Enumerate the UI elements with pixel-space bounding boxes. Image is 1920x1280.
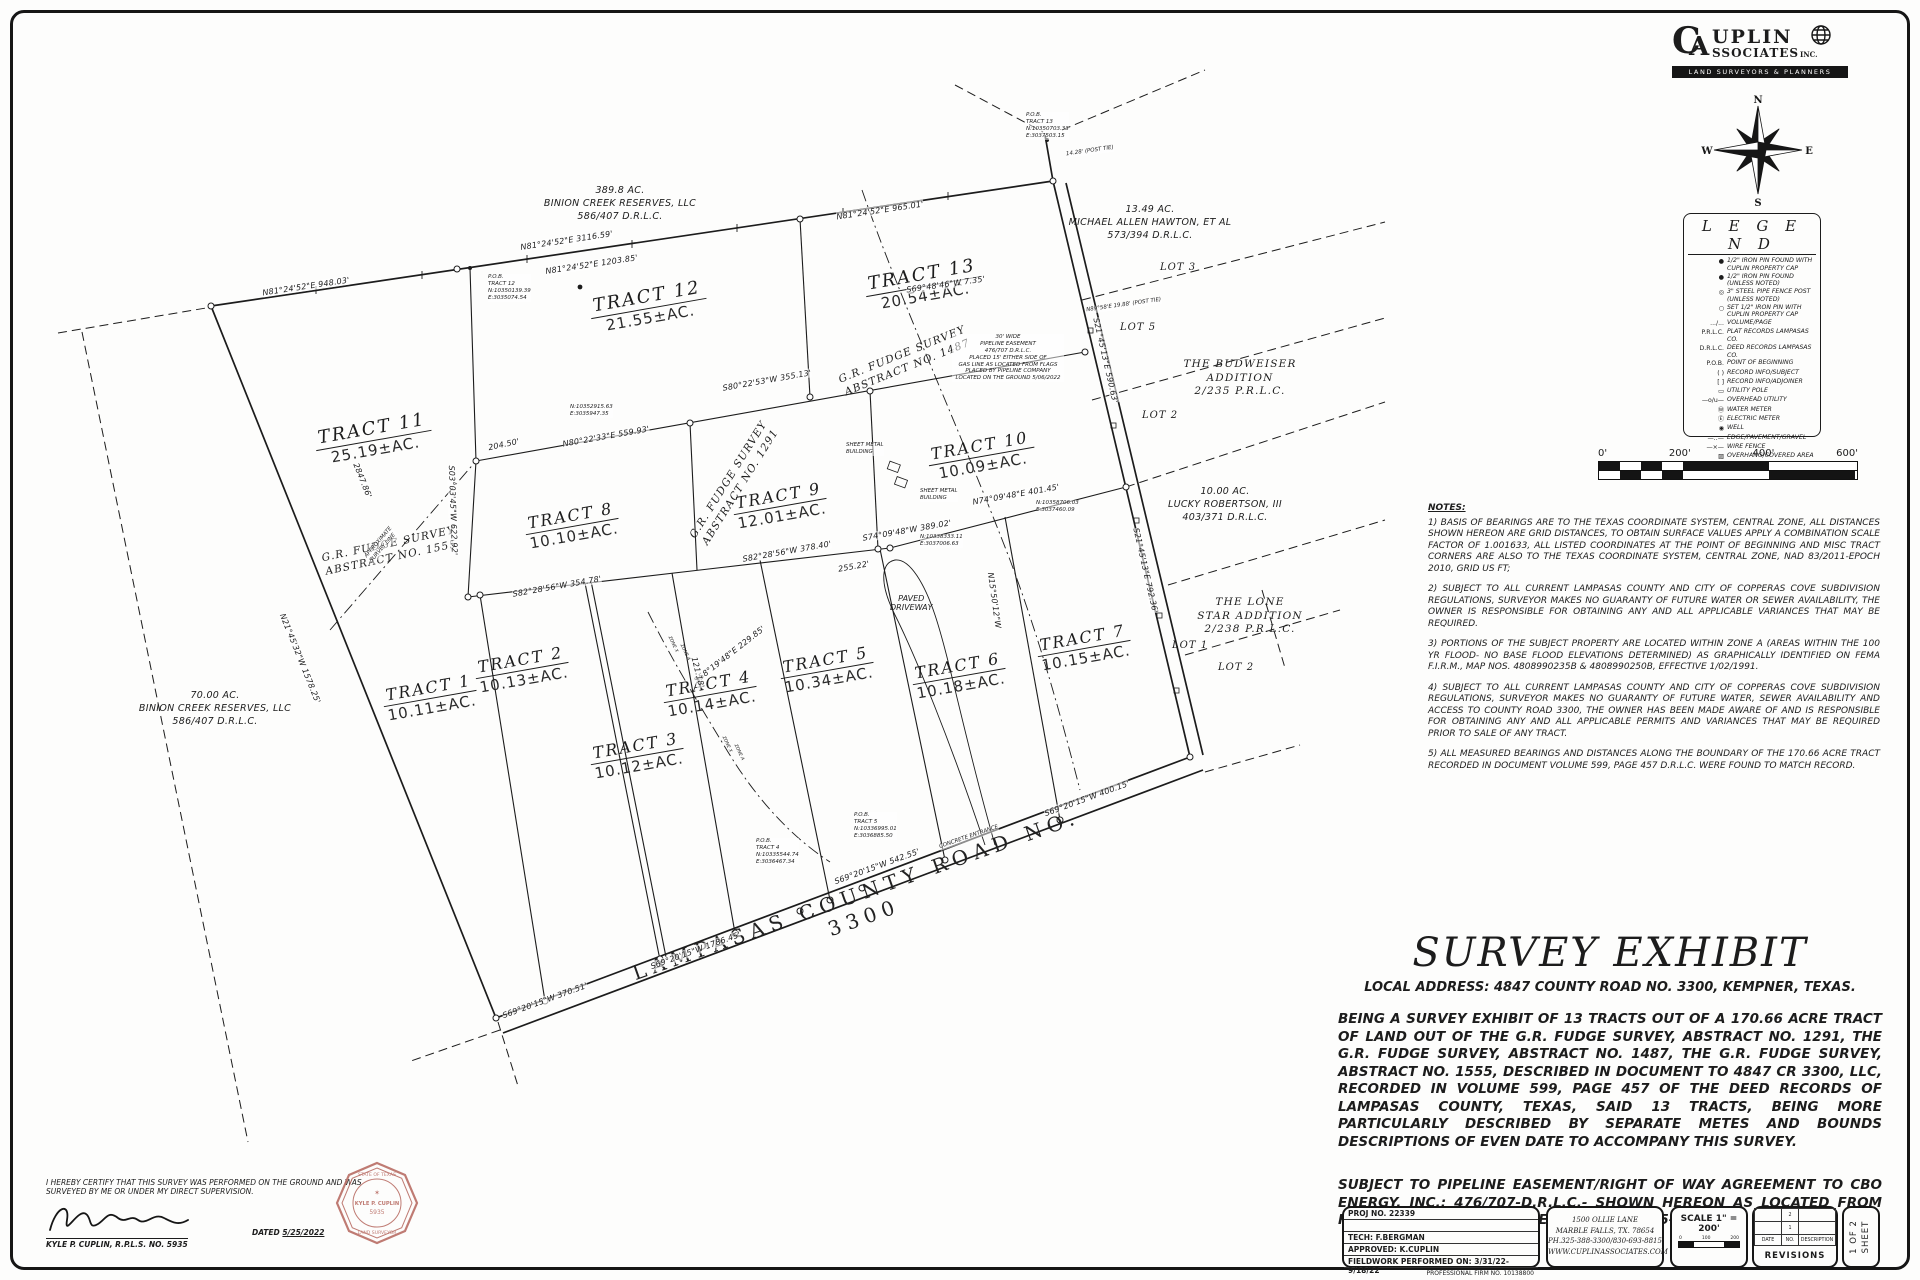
legend-symbol-prlc: P.R.L.C. — [1688, 328, 1724, 337]
address-line-1: 1500 OLLIE LANE — [1548, 1215, 1662, 1226]
pob-tract-13: P.O.B. TRACT 13 N:10350703.33 E:3037503.… — [1026, 112, 1069, 140]
notes-panel: NOTES: 1) BASIS OF BEARINGS ARE TO THE T… — [1428, 503, 1880, 781]
local-address: LOCAL ADDRESS: 4847 COUNTY ROAD NO. 3300… — [1338, 980, 1882, 995]
paved-driveway-label: PAVED DRIVEWAY — [890, 594, 932, 612]
scale-tick: 400' — [1753, 448, 1775, 459]
graphic-scale-bar: 0' 200' 400' 600' — [1598, 448, 1858, 480]
logo-letter-a: A — [1689, 32, 1709, 62]
legend-symbol-water-meter: Ⓦ — [1688, 406, 1724, 415]
logo-tagline: LAND SURVEYORS & PLANNERS — [1672, 66, 1848, 78]
sheet-count: 1 OF 2 — [1849, 1220, 1859, 1254]
note-1: 1) BASIS OF BEARINGS ARE TO THE TEXAS CO… — [1428, 518, 1880, 576]
legend-symbol-edge-pavement: —‥— — [1688, 434, 1724, 443]
scale-bar-top-row — [1598, 461, 1858, 471]
corner-coordinate: N:10338333.11 E:3037006.63 — [920, 534, 963, 548]
svg-text:✶: ✶ — [374, 1189, 380, 1197]
globe-icon — [1810, 24, 1832, 46]
legend-symbol-record-adjoiner: [ ] — [1688, 378, 1724, 387]
revision-row-number: 1 — [1782, 1222, 1799, 1235]
note-4: 4) SUBJECT TO ALL CURRENT LAMPASAS COUNT… — [1428, 683, 1880, 741]
legend-symbol-fence-post: ◎ — [1688, 288, 1724, 297]
revisions-title: REVISIONS — [1755, 1246, 1836, 1267]
adjoiner-binion-north: 389.8 AC. BINION CREEK RESERVES, LLC 586… — [520, 185, 720, 223]
address-line-2: MARBLE FALLS, TX. 78654 — [1548, 1226, 1662, 1237]
mini-scale-bar — [1678, 1241, 1740, 1248]
sheet-number-box: 1 OF 2 SHEET — [1842, 1206, 1880, 1268]
pob-tract-4: P.O.B. TRACT 4 N:10335544.74 E:3036467.3… — [756, 838, 799, 866]
dated-label: DATED — [252, 1228, 280, 1237]
legend-symbol-iron-pin-cap: ● — [1688, 257, 1724, 266]
lot-1-label: LOT 1 — [1172, 640, 1208, 651]
page-title: SURVEY EXHIBIT — [1338, 930, 1882, 976]
exhibit-description: BEING A SURVEY EXHIBIT OF 13 TRACTS OUT … — [1338, 1011, 1882, 1151]
seal-name: KYLE P. CUPLIN — [355, 1201, 399, 1207]
legend-symbol-pob: P.O.B. — [1688, 359, 1724, 368]
revisions-desc-header: DESCRIPTION — [1799, 1235, 1836, 1246]
legend-symbol-electric-meter: Ⓔ — [1688, 415, 1724, 424]
surveyor-signature — [46, 1200, 206, 1236]
tech-name: TECH: F.BERGMAN — [1344, 1232, 1538, 1244]
legend-symbol-record-subject: ( ) — [1688, 369, 1724, 378]
lot-2-lonestar-label: LOT 2 — [1218, 662, 1254, 673]
legend-symbol-drlc: D.R.L.C. — [1688, 344, 1724, 353]
scale-tick: 200' — [1669, 448, 1691, 459]
corner-coordinate: N:10352915.63 E:3035947.35 — [570, 404, 613, 418]
legend-symbol-volume-page: .../... — [1688, 319, 1724, 328]
exhibit-block: SURVEY EXHIBIT LOCAL ADDRESS: 4847 COUNT… — [1338, 930, 1882, 1230]
survey-sheet: LAMPASAS COUNTY ROAD NO. 3300 TRACT 110.… — [0, 0, 1920, 1280]
fieldwork-dates: FIELDWORK PERFORMED ON: 3/31/22-9/18/22 — [1344, 1256, 1538, 1268]
legend-box: L E G E N D ●1/2" IRON PIN FOUND WITH CU… — [1683, 213, 1821, 437]
blank-rule — [1344, 1220, 1538, 1232]
surveyor-name: KYLE P. CUPLIN, R.P.L.S. NO. 5935 — [46, 1238, 188, 1249]
lot-2-budweiser-label: LOT 2 — [1142, 410, 1178, 421]
mini-scale-tick: 0 — [1679, 1236, 1682, 1241]
approved-by: APPROVED: K.CUPLIN — [1344, 1244, 1538, 1256]
adjoiner-lonestar: THE LONE STAR ADDITION 2/238 P.R.L.C. — [1180, 596, 1320, 637]
revisions-no-header: NO. — [1782, 1235, 1799, 1246]
certification-date: 5/25/2022 — [282, 1228, 324, 1237]
lot-5-label: LOT 5 — [1120, 322, 1156, 333]
scale-tick: 0' — [1598, 448, 1607, 459]
logo-name: UPLIN — [1712, 26, 1792, 48]
compass-s: S — [1754, 198, 1761, 208]
pob-tract-5: P.O.B. TRACT 5 N:10336995.01 E:3036885.5… — [854, 812, 897, 840]
company-logo: C A UPLIN SSOCIATES INC. LAND SURVEYORS … — [1672, 24, 1848, 78]
mini-scale-tick: 200 — [1730, 1236, 1739, 1241]
revisions-date-header: DATE — [1755, 1235, 1782, 1246]
pipeline-easement-note: 30' WIDE PIPELINE EASEMENT 476/707 D.R.L… — [952, 334, 1064, 382]
note-3: 3) PORTIONS OF THE SUBJECT PROPERTY ARE … — [1428, 639, 1880, 674]
address-website: WWW.CUPLINASSOCIATES.COM — [1548, 1247, 1662, 1258]
surveyor-seal: STATE OF TEXAS ✶ KYLE P. CUPLIN 5935 LAN… — [334, 1160, 420, 1246]
sheet-metal-building-label: SHEET METAL BUILDING — [846, 442, 884, 456]
logo-name-2: SSOCIATES — [1712, 46, 1799, 60]
scale-bar-bottom-row — [1598, 471, 1858, 480]
adjoiner-budweiser: THE BUDWEISER ADDITION 2/235 P.R.L.C. — [1165, 358, 1315, 399]
sheet-metal-building-label: SHEET METAL BUILDING — [920, 488, 958, 502]
note-5: 5) ALL MEASURED BEARINGS AND DISTANCES A… — [1428, 749, 1880, 772]
legend-symbol-overhead-utility: —o/u— — [1688, 396, 1724, 405]
project-number: PROJ NO. 22339 — [1344, 1208, 1538, 1220]
mini-scale-tick: 100 — [1702, 1236, 1711, 1241]
lot-3-label: LOT 3 — [1160, 262, 1196, 273]
notes-heading: NOTES: — [1428, 503, 1880, 515]
scale-box: SCALE 1" = 200' 0 100 200 — [1670, 1206, 1748, 1268]
logo-inc: INC. — [1800, 50, 1818, 59]
north-arrow-compass: N E S W — [1700, 92, 1816, 208]
compass-n: N — [1753, 95, 1762, 106]
compass-w: W — [1700, 146, 1713, 157]
revisions-box: 2 1 DATE NO. DESCRIPTION REVISIONS — [1752, 1206, 1838, 1268]
boundary-lines — [211, 135, 1203, 1033]
address-phone: PH.325-388-3300/830-693-8815 — [1548, 1236, 1662, 1247]
legend-symbol-set-pin: ○ — [1688, 304, 1724, 313]
seal-number: 5935 — [369, 1209, 384, 1216]
compass-e: E — [1805, 146, 1813, 157]
adjoiner-robertson: 10.00 AC. LUCKY ROBERTSON, III 403/371 D… — [1140, 486, 1310, 524]
scale-text: SCALE 1" = 200' — [1672, 1214, 1746, 1234]
revision-row-number: 2 — [1782, 1209, 1799, 1222]
building-symbols — [883, 461, 911, 488]
adjoiner-hawton: 13.49 AC. MICHAEL ALLEN HAWTON, ET AL 57… — [1045, 204, 1255, 242]
adjoiner-binion-west: 70.00 AC. BINION CREEK RESERVES, LLC 586… — [115, 690, 315, 728]
legend-symbol-utility-pole: ▭ — [1688, 387, 1724, 396]
company-address-box: 1500 OLLIE LANE MARBLE FALLS, TX. 78654 … — [1546, 1206, 1664, 1268]
certification-statement: I HEREBY CERTIFY THAT THIS SURVEY WAS PE… — [46, 1178, 382, 1196]
note-2: 2) SUBJECT TO ALL CURRENT LAMPASAS COUNT… — [1428, 584, 1880, 630]
scale-tick: 600' — [1836, 448, 1858, 459]
legend-title: L E G E N D — [1688, 217, 1816, 255]
sheet-label: SHEET — [1861, 1221, 1871, 1254]
legend-symbol-iron-pin: ● — [1688, 273, 1724, 282]
pob-tract-12: P.O.B. TRACT 12 N:10350139.39 E:3035074.… — [488, 274, 531, 302]
project-info-box: PROJ NO. 22339 TECH: F.BERGMAN APPROVED:… — [1342, 1206, 1540, 1268]
seal-title: LAND SURVEYOR — [358, 1230, 398, 1236]
legend-symbol-well: ◉ — [1688, 424, 1724, 433]
seal-state: STATE OF TEXAS — [358, 1172, 396, 1178]
corner-coordinate: N:10358706.03 E:3037460.09 — [1036, 500, 1079, 514]
